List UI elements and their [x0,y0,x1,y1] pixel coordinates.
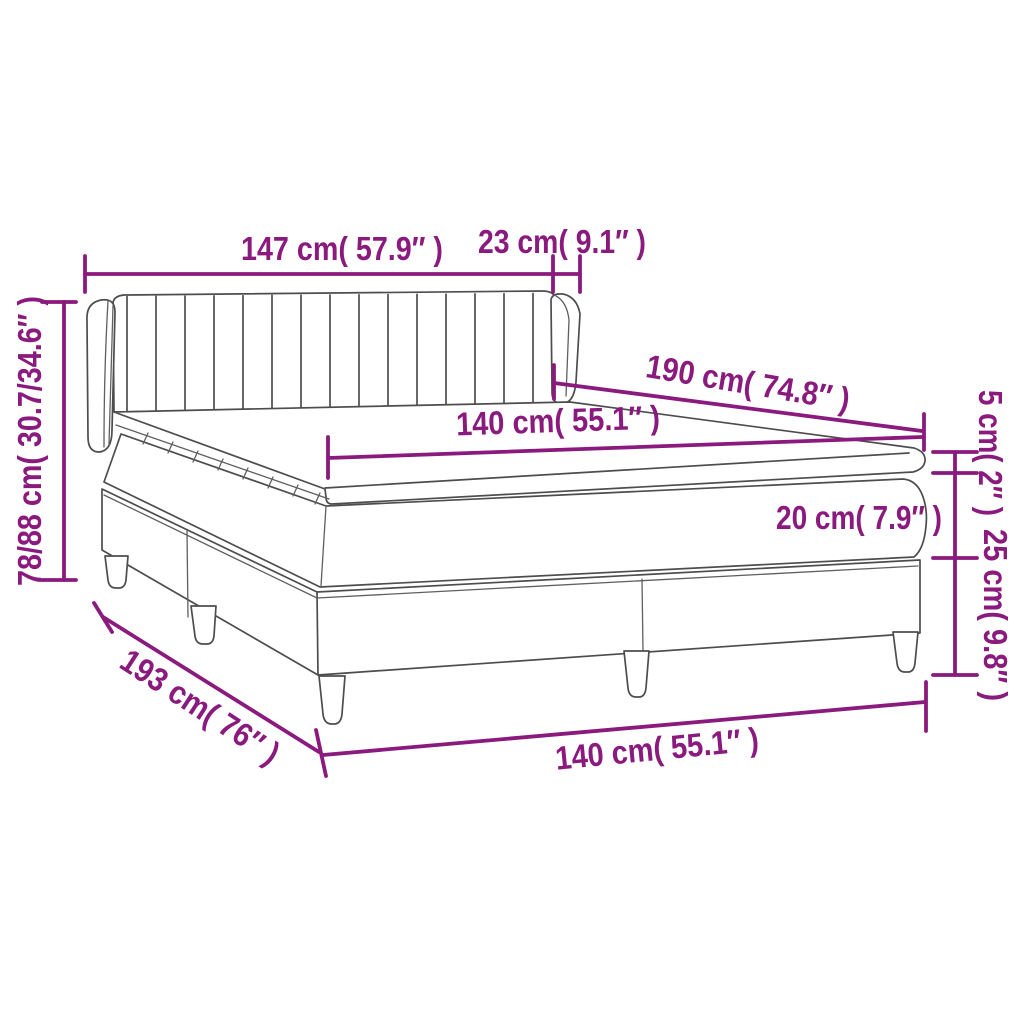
leg-mid-left [191,606,216,644]
headboard-panel [113,291,557,412]
label-headboard-width: 147 cm( 57.9″ ) [241,230,443,267]
base-corner-edge [317,592,318,675]
label-base-width: 140 cm( 55.1″ ) [554,720,761,776]
diagram-canvas: 147 cm( 57.9″ ) 23 cm( 9.1″ ) 78/88 cm( … [0,0,1024,1024]
bed-dimension-diagram: 147 cm( 57.9″ ) 23 cm( 9.1″ ) 78/88 cm( … [0,0,1024,1024]
label-mattress-width: 140 cm( 55.1″ ) [455,398,660,442]
label-total-length: 193 cm( 76″ ) [114,642,287,772]
leg-front-left [319,676,345,724]
label-base-height: 25 cm( 9.8″ ) [977,529,1014,701]
leg-front-mid [624,651,649,697]
label-total-height: 78/88 cm( 30.7/34.6″ ) [11,296,48,586]
label-headboard-side-depth: 23 cm( 9.1″ ) [478,223,646,260]
label-topper-height: 5 cm( 2″ ) [972,390,1009,516]
dim-height-stack [933,452,977,675]
leg-front-right [893,632,918,672]
leg-back-left [105,556,128,588]
label-mattress-height: 20 cm( 7.9″ ) [776,499,942,536]
